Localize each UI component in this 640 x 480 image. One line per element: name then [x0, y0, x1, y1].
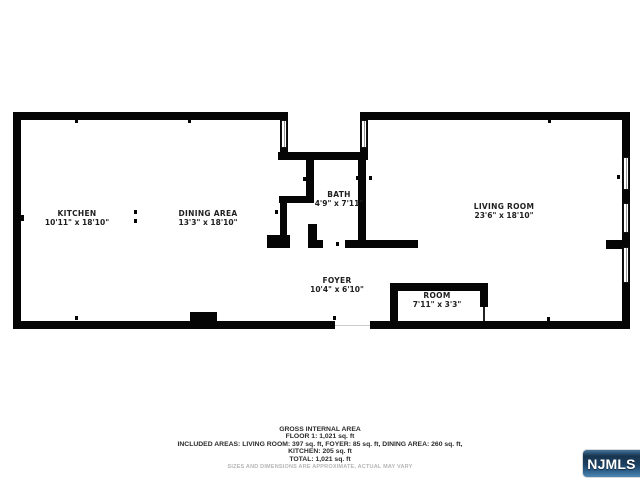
room-label-bath: BATH 4'9" x 7'11" [315, 190, 364, 208]
room-door-line [483, 307, 485, 321]
tick-mark [336, 242, 339, 246]
wall-notch-bottom [278, 152, 368, 160]
tick-mark [617, 175, 620, 179]
wall-closet-top [279, 196, 314, 203]
tick-mark [75, 316, 78, 320]
area-summary: GROSS INTERNAL AREA FLOOR 1: 1,021 sq. f… [0, 426, 640, 471]
summary-disclaimer: SIZES AND DIMENSIONS ARE APPROXIMATE, AC… [0, 464, 640, 471]
tick-mark [333, 316, 336, 320]
room-name: KITCHEN [45, 209, 109, 218]
room-dimensions: 10'11" x 18'10" [45, 218, 109, 227]
window-right-2 [623, 203, 629, 233]
room-name: LIVING ROOM [474, 202, 535, 211]
tick-mark [548, 119, 551, 123]
tick-mark [21, 215, 24, 221]
wall-bottom-right [370, 321, 630, 329]
summary-kitchen-line: KITCHEN: 205 sq. ft [0, 448, 640, 455]
room-name: DINING AREA [179, 209, 238, 218]
wall-closet-left [280, 203, 287, 235]
njmls-logo: NJMLS [582, 449, 640, 478]
tick-mark [428, 284, 431, 288]
room-dimensions: 4'9" x 7'11" [315, 199, 364, 208]
tick-mark [188, 119, 191, 123]
room-name: ROOM [413, 291, 462, 300]
wall-room-top [390, 283, 488, 291]
room-label-dining-area: DINING AREA 13'3" x 18'10" [179, 209, 238, 227]
room-dimensions: 23'6" x 18'10" [474, 211, 535, 220]
room-name: FOYER [310, 276, 364, 285]
floor-plan-canvas: KITCHEN 10'11" x 18'10" DINING AREA 13'3… [0, 0, 640, 480]
room-dimensions: 10'4" x 6'10" [310, 285, 364, 294]
wall-bottom-left [13, 321, 335, 329]
tick-mark [134, 210, 137, 214]
tick-mark [356, 176, 359, 180]
room-dimensions: 7'11" x 3'3" [413, 300, 462, 309]
entry-threshold-line [335, 325, 370, 326]
tick-mark [303, 177, 306, 181]
summary-included-line: INCLUDED AREAS: LIVING ROOM: 397 sq. ft,… [0, 441, 640, 448]
room-name: BATH [315, 190, 364, 199]
window-right-1 [623, 157, 629, 190]
tick-mark [369, 176, 372, 180]
wall-bath-left-lower [308, 224, 317, 240]
summary-floor-line: FLOOR 1: 1,021 sq. ft [0, 433, 640, 440]
window-right-3 [623, 247, 629, 283]
summary-total-line: TOTAL: 1,021 sq. ft [0, 456, 640, 463]
tick-mark [547, 317, 550, 321]
wall-top-left [13, 112, 288, 120]
tick-mark [275, 210, 278, 214]
wall-closet-foot [267, 235, 290, 248]
wall-living-stub [606, 240, 622, 249]
wall-room-right-upper [480, 283, 488, 307]
window-notch-left [281, 120, 287, 148]
room-label-foyer: FOYER 10'4" x 6'10" [310, 276, 364, 294]
wall-room-left [390, 283, 398, 321]
room-dimensions: 13'3" x 18'10" [179, 218, 238, 227]
window-notch-right [361, 120, 367, 148]
njmls-logo-text: NJMLS [587, 456, 635, 472]
summary-title: GROSS INTERNAL AREA [0, 426, 640, 433]
room-label-living-room: LIVING ROOM 23'6" x 18'10" [474, 202, 535, 220]
wall-left [13, 112, 21, 329]
tick-mark [134, 219, 137, 223]
room-label-room: ROOM 7'11" x 3'3" [413, 291, 462, 309]
wall-top-right [360, 112, 630, 120]
wall-bath-left-foot [308, 240, 323, 248]
wall-bath-bottom [345, 240, 418, 248]
entry-step-block [190, 312, 217, 321]
room-label-kitchen: KITCHEN 10'11" x 18'10" [45, 209, 109, 227]
tick-mark [75, 119, 78, 123]
